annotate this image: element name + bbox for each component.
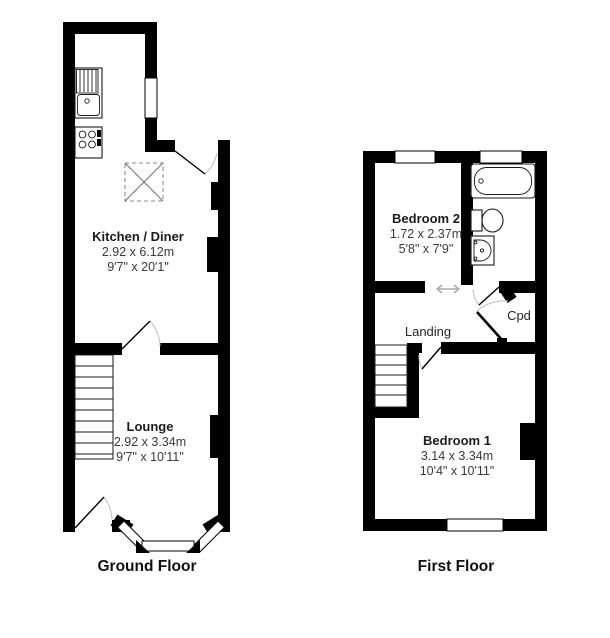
bedroom2-dim-metric: 1.72 x 2.37m: [390, 227, 462, 241]
gf-kitchen-pier-small: [211, 182, 218, 210]
gf-upper-right-wall-b: [145, 118, 157, 140]
gf-front-door-leaf: [75, 497, 104, 528]
door-swing-arc: [205, 153, 217, 174]
bedroom2-label: Bedroom 2: [392, 211, 460, 226]
ff-bedroom1-door-leaf: [422, 347, 441, 369]
bay-window-centre-pane: [142, 541, 194, 551]
kitchen-label: Kitchen / Diner: [92, 229, 184, 244]
gf-upper-right-wall-a: [145, 34, 157, 78]
bedroom1-label: Bedroom 1: [423, 433, 491, 448]
gf-front-door: [75, 497, 112, 528]
ff-bathroom-window: [480, 151, 522, 163]
skylight-icon: [125, 163, 163, 201]
ff-bedroom1-door: [419, 347, 441, 369]
bedroom2-dim-imperial: 5'8" x 7'9": [399, 242, 454, 256]
ground-floor-title: Ground Floor: [97, 558, 196, 575]
toilet-icon: [471, 209, 503, 232]
landing-label: Landing: [405, 324, 451, 339]
gf-top-wall: [63, 22, 157, 34]
ff-stairs-icon: [375, 345, 407, 407]
gf-stairs-icon: [75, 355, 113, 459]
bay-window: [114, 520, 224, 553]
bath-icon: [471, 164, 535, 198]
bedroom1-dim-metric: 3.14 x 3.34m: [421, 449, 493, 463]
gf-divider-wall-right: [160, 343, 230, 355]
lounge-dim-metric: 2.92 x 3.34m: [114, 435, 186, 449]
ff-bedroom2-window: [395, 151, 435, 163]
door-swing-arc: [104, 497, 112, 519]
ff-stairwell-bottom-wall: [375, 407, 419, 418]
basin-icon: [471, 236, 494, 265]
sliding-door-arrow-icon: [437, 285, 459, 293]
ff-bathroom-door-leaf: [479, 287, 499, 305]
ff-cupboard-door: [477, 301, 508, 341]
gf-internal-door-leaf: [122, 321, 150, 349]
ff-cupboard-door-leaf: [477, 312, 503, 341]
ff-landing-bottom-wall: [441, 342, 547, 354]
first-floor-plan: Bedroom 2 1.72 x 2.37m 5'8" x 7'9" Landi…: [363, 151, 547, 575]
floorplan-canvas: Kitchen / Diner 2.92 x 6.12m 9'7" x 20'1…: [0, 0, 610, 638]
kitchen-dim-metric: 2.92 x 6.12m: [102, 245, 174, 259]
gf-internal-door: [122, 321, 160, 349]
hob-icon: [75, 127, 102, 158]
gf-left-wall: [63, 22, 75, 532]
door-swing-arc: [150, 321, 160, 346]
door-swing-arc: [473, 289, 479, 305]
lounge-dim-imperial: 9'7" x 10'11": [116, 450, 184, 464]
ff-bed1-pier: [520, 423, 535, 460]
gf-side-window: [145, 78, 157, 118]
ff-stairwell-right-wall: [407, 343, 419, 418]
ff-bedroom1-window: [447, 519, 503, 531]
floorplan-svg: Kitchen / Diner 2.92 x 6.12m 9'7" x 20'1…: [0, 0, 610, 638]
ground-floor-plan: Kitchen / Diner 2.92 x 6.12m 9'7" x 20'1…: [63, 22, 230, 575]
door-swing-arc: [419, 355, 422, 369]
kitchen-sink-icon: [75, 68, 102, 118]
ff-cpd-chamfer-wall: [504, 288, 512, 300]
ff-right-wall: [535, 151, 547, 531]
bedroom1-dim-imperial: 10'4" x 10'11": [420, 464, 495, 478]
gf-right-wall: [218, 140, 230, 532]
gf-door-stub: [145, 140, 175, 152]
ff-left-wall: [363, 151, 375, 531]
lounge-label: Lounge: [127, 419, 174, 434]
ff-stairwell-top-stub: [407, 343, 422, 353]
gf-lounge-pier: [210, 415, 218, 458]
gf-kitchen-pier-large: [207, 237, 218, 272]
cupboard-label: Cpd: [507, 308, 531, 323]
ff-bathroom-door: [473, 287, 499, 305]
gf-divider-wall-left: [63, 343, 122, 355]
kitchen-dim-imperial: 9'7" x 20'1": [107, 260, 169, 274]
gf-side-door-leaf: [175, 151, 205, 174]
ff-bed2-bottom-wall: [363, 281, 425, 293]
first-floor-title: First Floor: [418, 558, 495, 575]
gf-side-door: [175, 151, 217, 174]
